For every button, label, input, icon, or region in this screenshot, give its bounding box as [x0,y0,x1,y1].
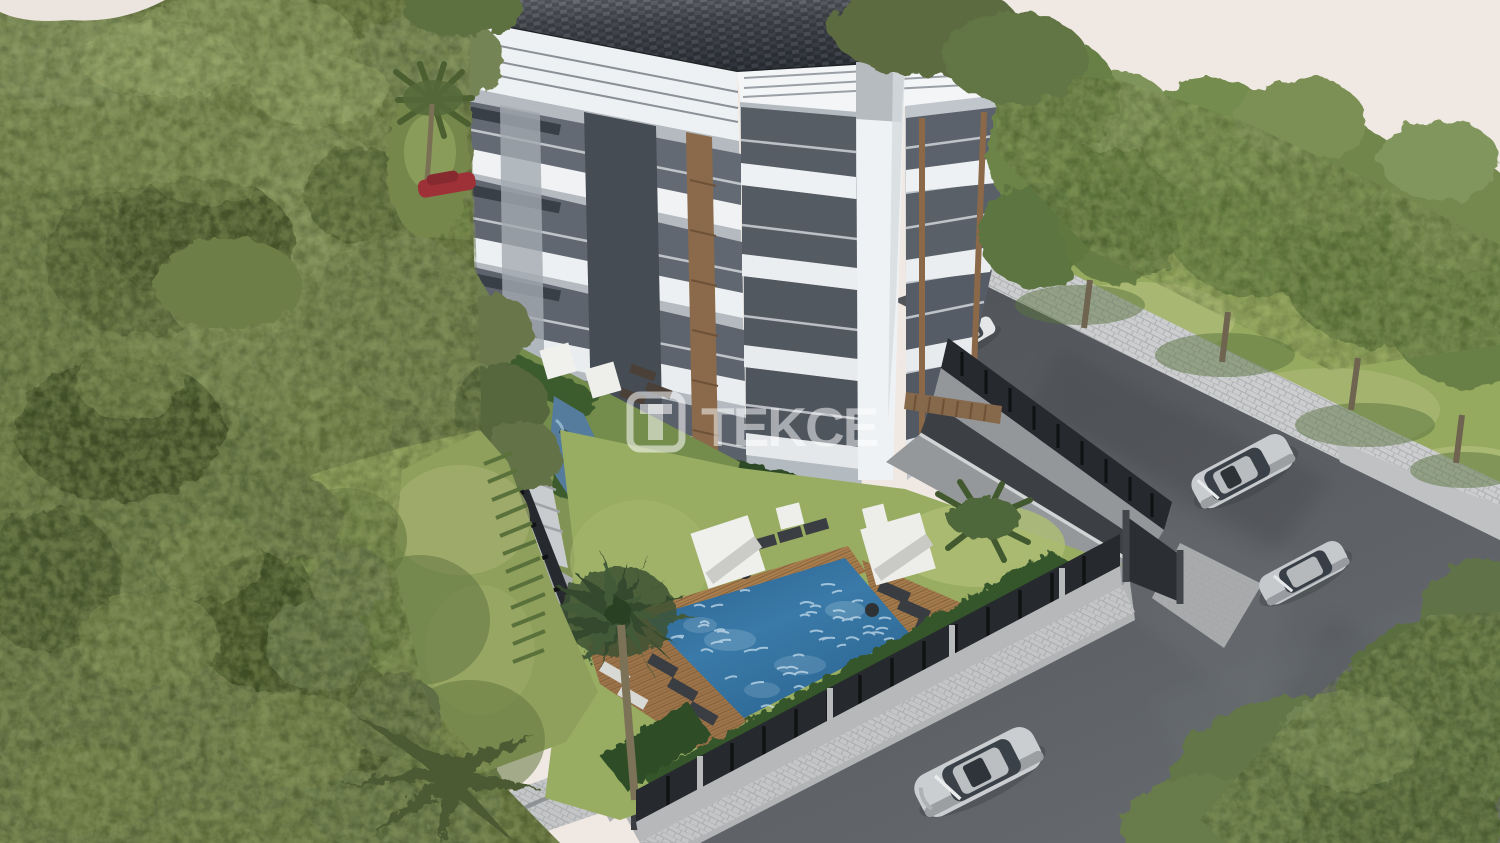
svg-text:TEKCE: TEKCE [701,396,878,458]
